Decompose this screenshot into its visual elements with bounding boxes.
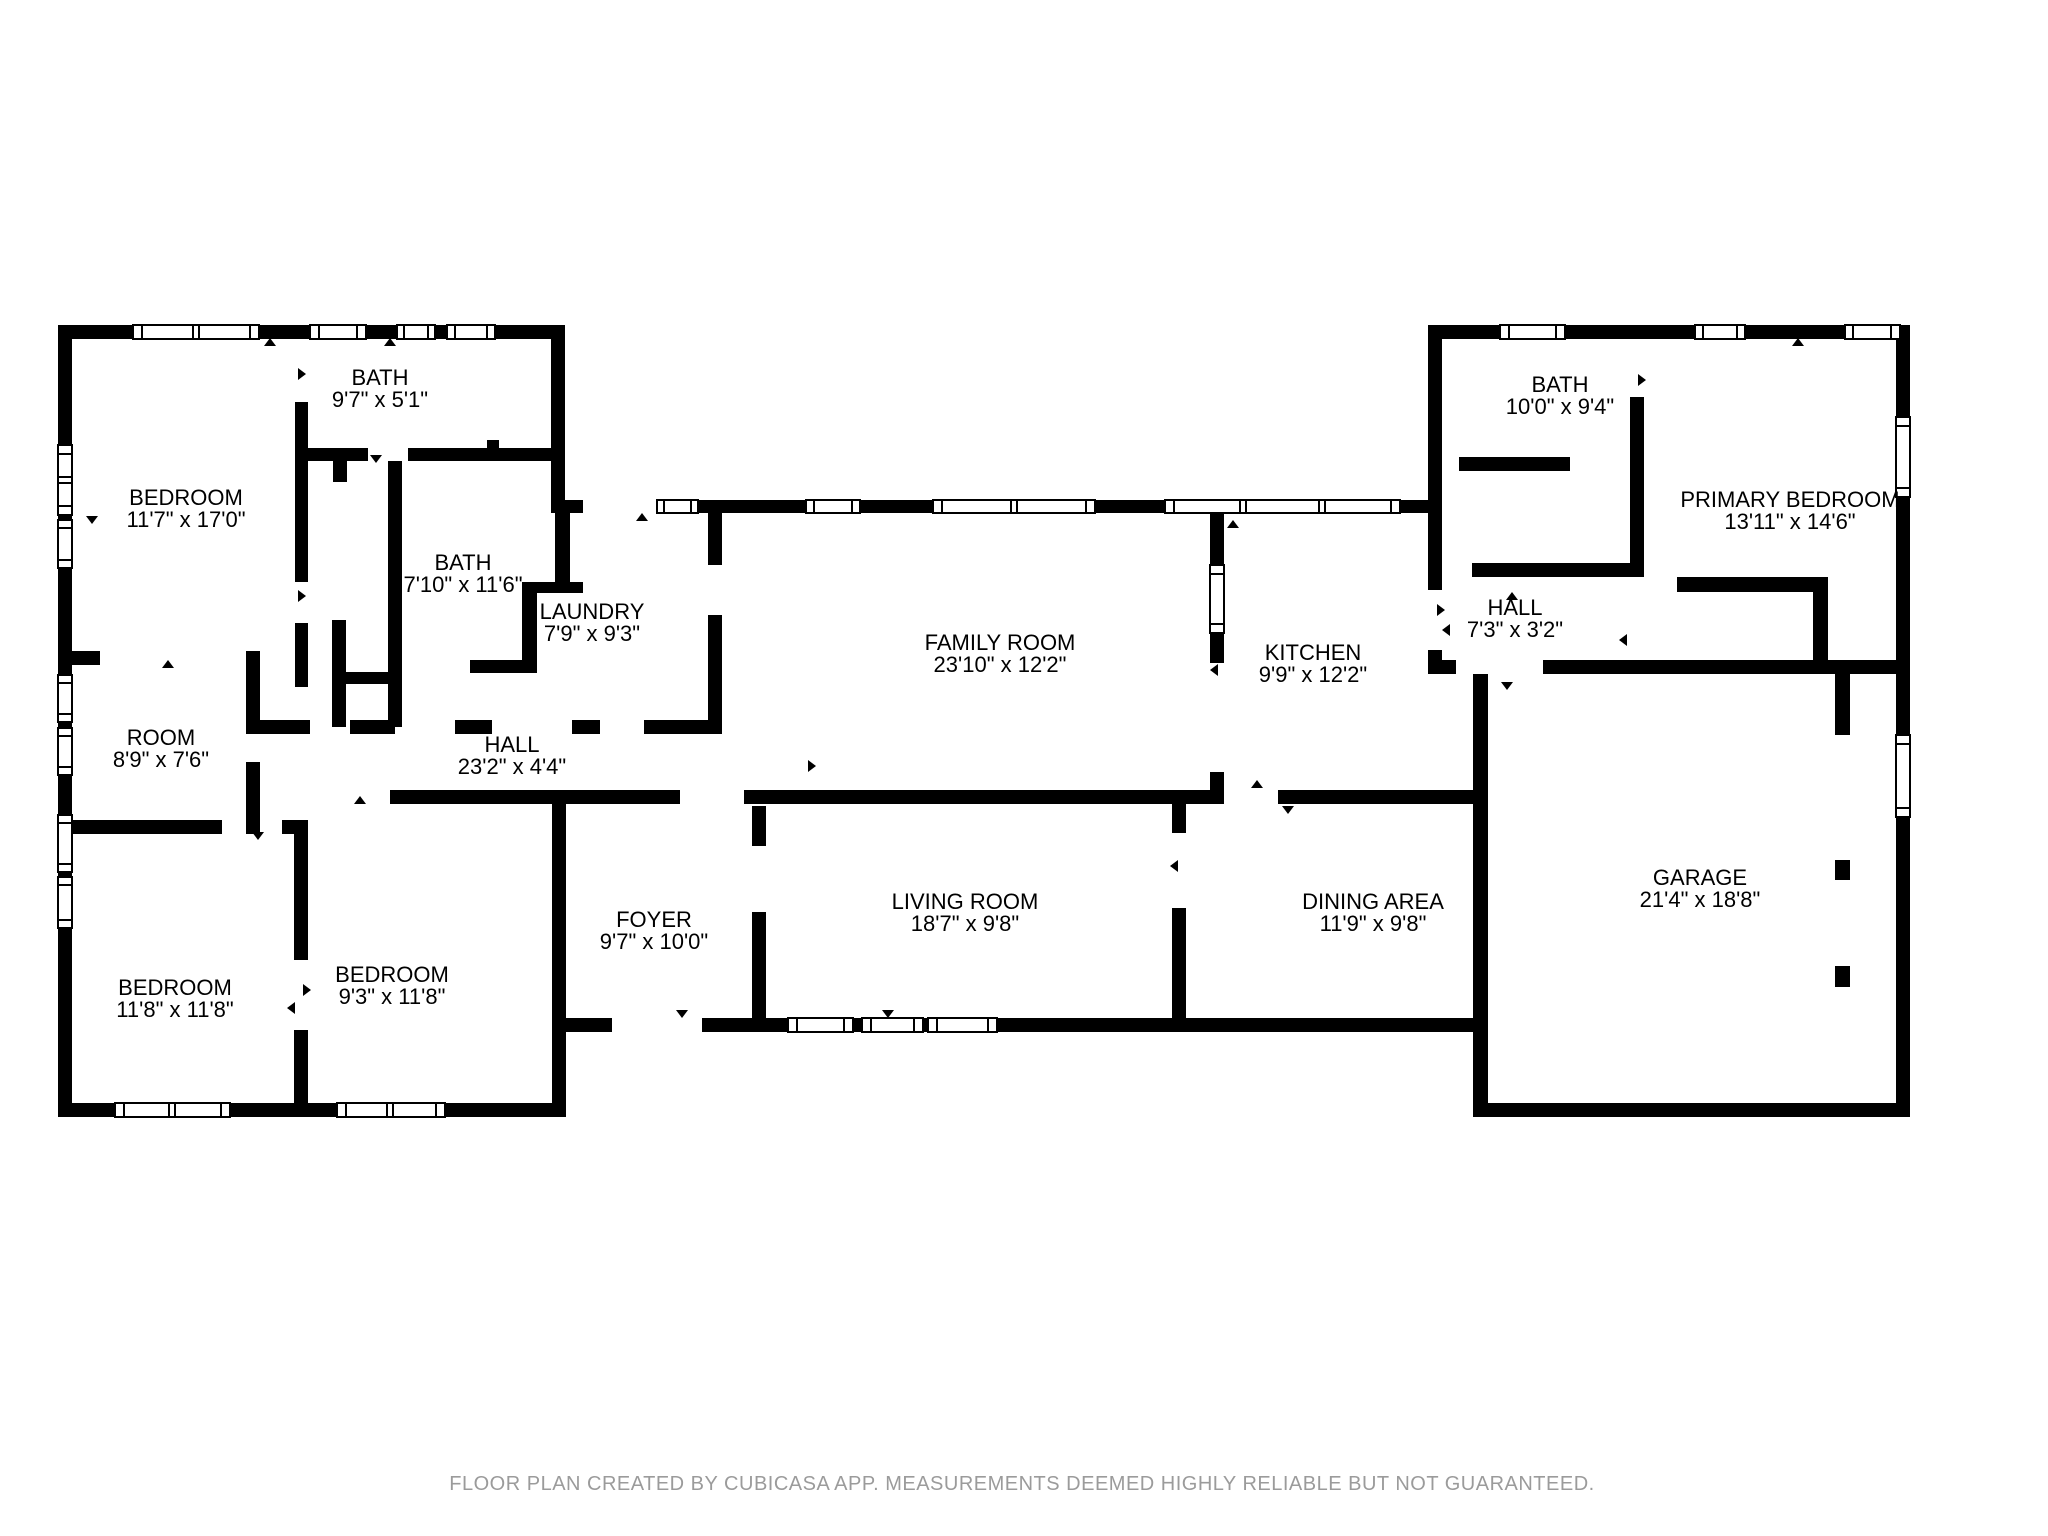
room-label-bedroom-lower-left: BEDROOM 11'8" x 11'8" — [116, 975, 233, 1022]
room-label-bedroom-upper-left: BEDROOM 11'7" x 17'0" — [126, 485, 245, 532]
room-label-laundry: LAUNDRY 7'9" x 9'3" — [540, 599, 645, 646]
room-label-hall-right: HALL 7'3" x 3'2" — [1467, 595, 1563, 642]
room-dims: 11'8" x 11'8" — [116, 997, 233, 1022]
room-dims: 7'10" x 11'6" — [403, 572, 522, 597]
room-dims: 7'3" x 3'2" — [1467, 617, 1563, 642]
room-label-living-room: LIVING ROOM 18'7" x 9'8" — [892, 889, 1039, 936]
room-dims: 23'10" x 12'2" — [934, 652, 1067, 677]
room-dims: 11'7" x 17'0" — [126, 507, 245, 532]
disclaimer-text: FLOOR PLAN CREATED BY CUBICASA APP. MEAS… — [449, 1473, 1594, 1495]
room-label-garage: GARAGE 21'4" x 18'8" — [1640, 865, 1761, 912]
walls — [58, 325, 1910, 1117]
room-dims: 7'9" x 9'3" — [544, 621, 640, 646]
room-dims: 9'7" x 5'1" — [332, 387, 428, 412]
floor-plan-page: BATH 9'7" x 5'1" BEDROOM 11'7" x 17'0" B… — [0, 0, 2048, 1536]
room-dims: 9'7" x 10'0" — [600, 929, 708, 954]
room-dims: 10'0" x 9'4" — [1506, 394, 1614, 419]
room-label-foyer: FOYER 9'7" x 10'0" — [600, 907, 708, 954]
room-dims: 23'2" x 4'4" — [458, 754, 566, 779]
room-label-bath-right: BATH 10'0" x 9'4" — [1506, 372, 1614, 419]
room-label-bath-mid-left: BATH 7'10" x 11'6" — [403, 550, 522, 597]
room-dims: 9'9" x 12'2" — [1259, 662, 1367, 687]
room-label-bedroom-lower-mid: BEDROOM 9'3" x 11'8" — [335, 962, 449, 1009]
floor-plan-drawing: BATH 9'7" x 5'1" BEDROOM 11'7" x 17'0" B… — [0, 0, 2048, 1536]
room-dims: 8'9" x 7'6" — [113, 747, 209, 772]
room-dims: 9'3" x 11'8" — [339, 984, 446, 1009]
room-label-room: ROOM 8'9" x 7'6" — [113, 725, 209, 772]
room-label-hall-left: HALL 23'2" x 4'4" — [458, 732, 566, 779]
room-label-primary-bedroom: PRIMARY BEDROOM 13'11" x 14'6" — [1680, 487, 1899, 534]
room-label-dining-area: DINING AREA 11'9" x 9'8" — [1302, 889, 1444, 936]
room-dims: 21'4" x 18'8" — [1640, 887, 1761, 912]
room-label-kitchen: KITCHEN 9'9" x 12'2" — [1259, 640, 1367, 687]
room-dims: 11'9" x 9'8" — [1320, 911, 1427, 936]
room-dims: 13'11" x 14'6" — [1724, 509, 1855, 534]
room-label-family-room: FAMILY ROOM 23'10" x 12'2" — [925, 630, 1076, 677]
room-label-bath-upper-left: BATH 9'7" x 5'1" — [332, 365, 428, 412]
room-dims: 18'7" x 9'8" — [911, 911, 1019, 936]
